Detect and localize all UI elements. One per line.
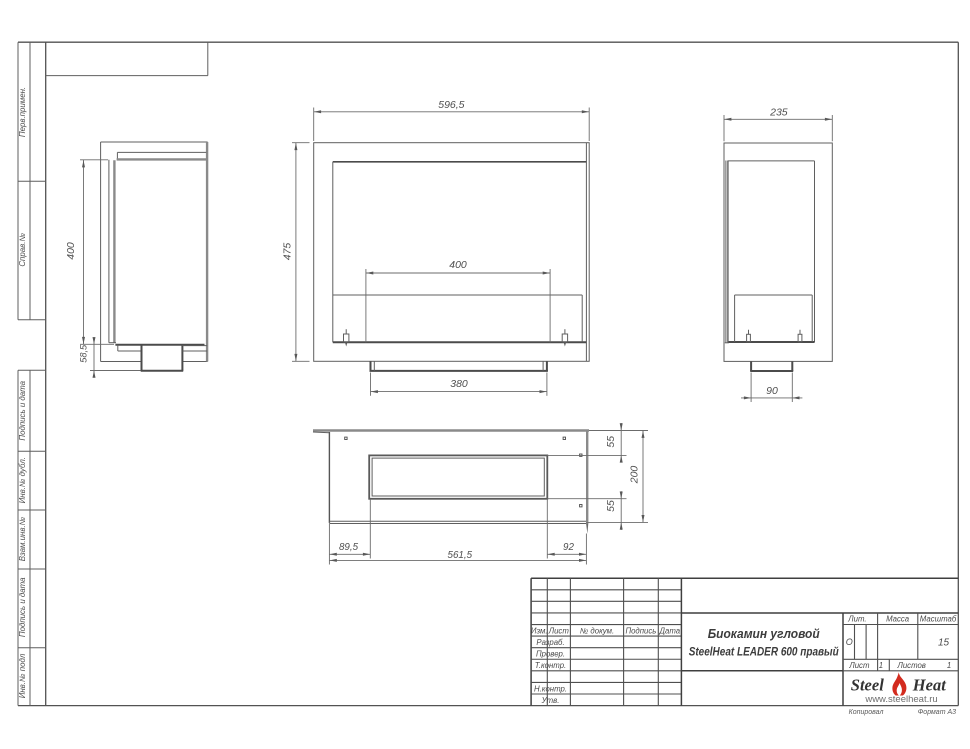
svg-text:55: 55 [605, 500, 617, 512]
svg-text:1: 1 [879, 661, 883, 670]
svg-text:Steel: Steel [851, 676, 884, 695]
svg-text:15: 15 [938, 638, 950, 649]
svg-text:Утв.: Утв. [541, 696, 560, 705]
svg-text:58,5: 58,5 [79, 344, 89, 363]
svg-text:92: 92 [563, 542, 574, 553]
svg-text:Инв.№ дубл.: Инв.№ дубл. [18, 457, 27, 503]
svg-text:235: 235 [769, 106, 788, 118]
svg-text:О: О [846, 637, 853, 647]
svg-text:Взам.инв.№: Взам.инв.№ [18, 517, 27, 561]
svg-text:Провер.: Провер. [536, 650, 565, 659]
svg-text:89,5: 89,5 [339, 542, 359, 553]
svg-text:380: 380 [450, 378, 468, 390]
svg-text:Подпись и дата: Подпись и дата [18, 577, 27, 637]
svg-text:Дата: Дата [659, 627, 681, 636]
svg-text:Масса: Масса [886, 615, 910, 624]
svg-text:596,5: 596,5 [438, 99, 464, 111]
svg-text:№ докум.: № докум. [580, 627, 614, 636]
svg-text:www.steelheat.ru: www.steelheat.ru [864, 694, 937, 705]
svg-text:200: 200 [629, 466, 641, 485]
svg-text:Лит.: Лит. [847, 615, 866, 624]
svg-text:Т.контр.: Т.контр. [535, 661, 566, 670]
svg-text:Биокамин угловой: Биокамин угловой [708, 626, 820, 641]
svg-text:Н.контр.: Н.контр. [534, 684, 567, 693]
svg-text:400: 400 [449, 259, 467, 271]
svg-text:Формат А3: Формат А3 [918, 709, 956, 716]
svg-text:90: 90 [766, 385, 778, 397]
svg-text:Изм.: Изм. [531, 627, 548, 636]
svg-text:Справ.№: Справ.№ [18, 233, 27, 267]
svg-text:Разраб.: Разраб. [536, 638, 564, 647]
svg-text:Подпись и дата: Подпись и дата [18, 380, 27, 440]
svg-text:1: 1 [947, 661, 951, 670]
svg-text:55: 55 [605, 436, 617, 448]
svg-text:Листов: Листов [896, 661, 925, 670]
svg-text:400: 400 [65, 242, 77, 260]
svg-text:Масштаб: Масштаб [920, 615, 957, 624]
svg-text:Инв.№ подл: Инв.№ подл [18, 653, 27, 698]
svg-text:Heat: Heat [912, 676, 946, 695]
svg-text:Лист: Лист [548, 627, 570, 636]
svg-text:561,5: 561,5 [448, 550, 473, 561]
svg-text:Подпись: Подпись [625, 627, 656, 636]
svg-text:SteelHeat LEADER 600 правый: SteelHeat LEADER 600 правый [689, 645, 840, 659]
svg-text:475: 475 [281, 243, 293, 261]
svg-text:Копировал: Копировал [849, 709, 884, 716]
svg-text:Перв.примен.: Перв.примен. [18, 87, 27, 137]
svg-text:Лист: Лист [848, 661, 870, 670]
